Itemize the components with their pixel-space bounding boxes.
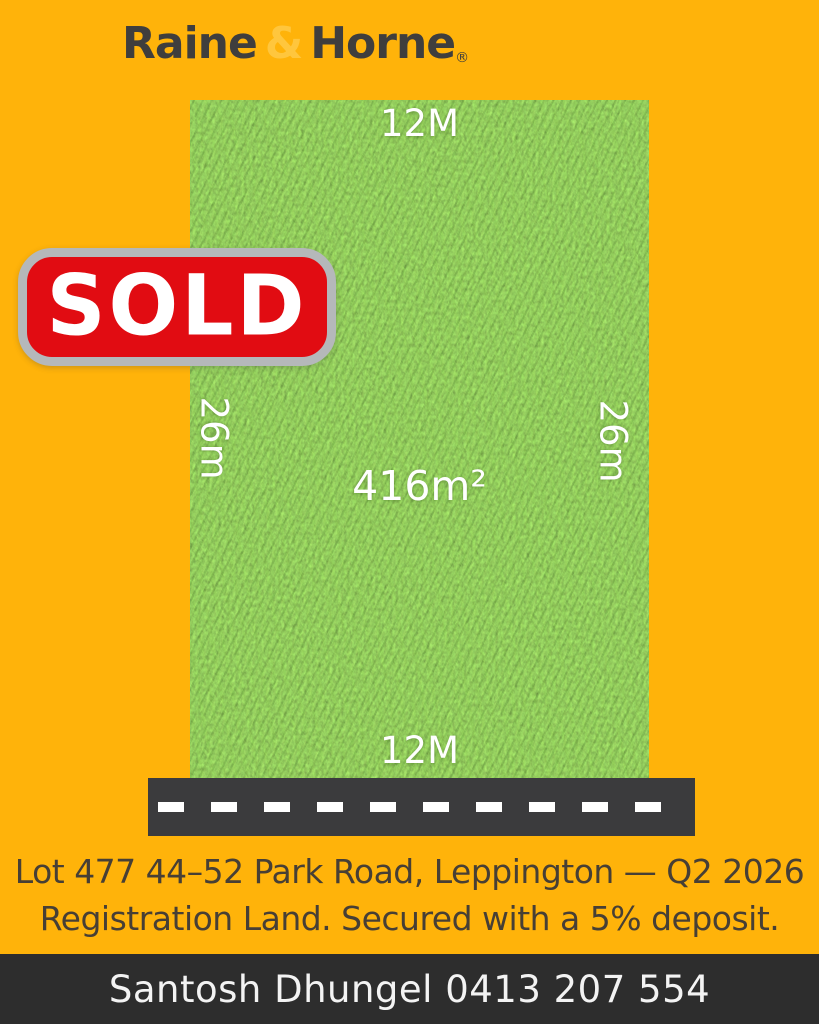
land-lot-image: 12M 26m 26m 416m² 12M — [190, 100, 649, 778]
flyer-canvas: Raine&Horne® 12M 26m 26m 416m² 12M SOLD … — [0, 0, 819, 1024]
brand-logo: Raine&Horne® — [122, 18, 468, 69]
footer-contact-bar: Santosh Dhungel 0413 207 554 — [0, 954, 819, 1024]
sold-badge: SOLD — [18, 248, 336, 366]
brand-name-right: Horne — [310, 18, 455, 69]
caption-block: Lot 477 44–52 Park Road, Leppington — Q2… — [0, 848, 819, 942]
lot-bottom-width-label: 12M — [190, 729, 649, 772]
road-dashed-line — [158, 802, 683, 812]
registered-trademark-icon: ® — [455, 50, 468, 66]
lot-area-label: 416m² — [190, 462, 649, 510]
brand-ampersand: & — [257, 18, 310, 69]
sold-badge-label: SOLD — [46, 265, 307, 349]
grass-blade-overlay — [190, 100, 649, 778]
lot-top-width-label: 12M — [190, 102, 649, 145]
caption-address-line: Lot 477 44–52 Park Road, Leppington — Q2… — [0, 848, 819, 895]
agent-contact-text: Santosh Dhungel 0413 207 554 — [109, 968, 710, 1011]
brand-name-left: Raine — [122, 18, 257, 69]
lot-right-depth-label: 26m — [592, 400, 635, 450]
road-strip — [148, 778, 695, 836]
lot-left-depth-label: 26m — [193, 397, 236, 447]
caption-terms-line: Registration Land. Secured with a 5% dep… — [0, 895, 819, 942]
